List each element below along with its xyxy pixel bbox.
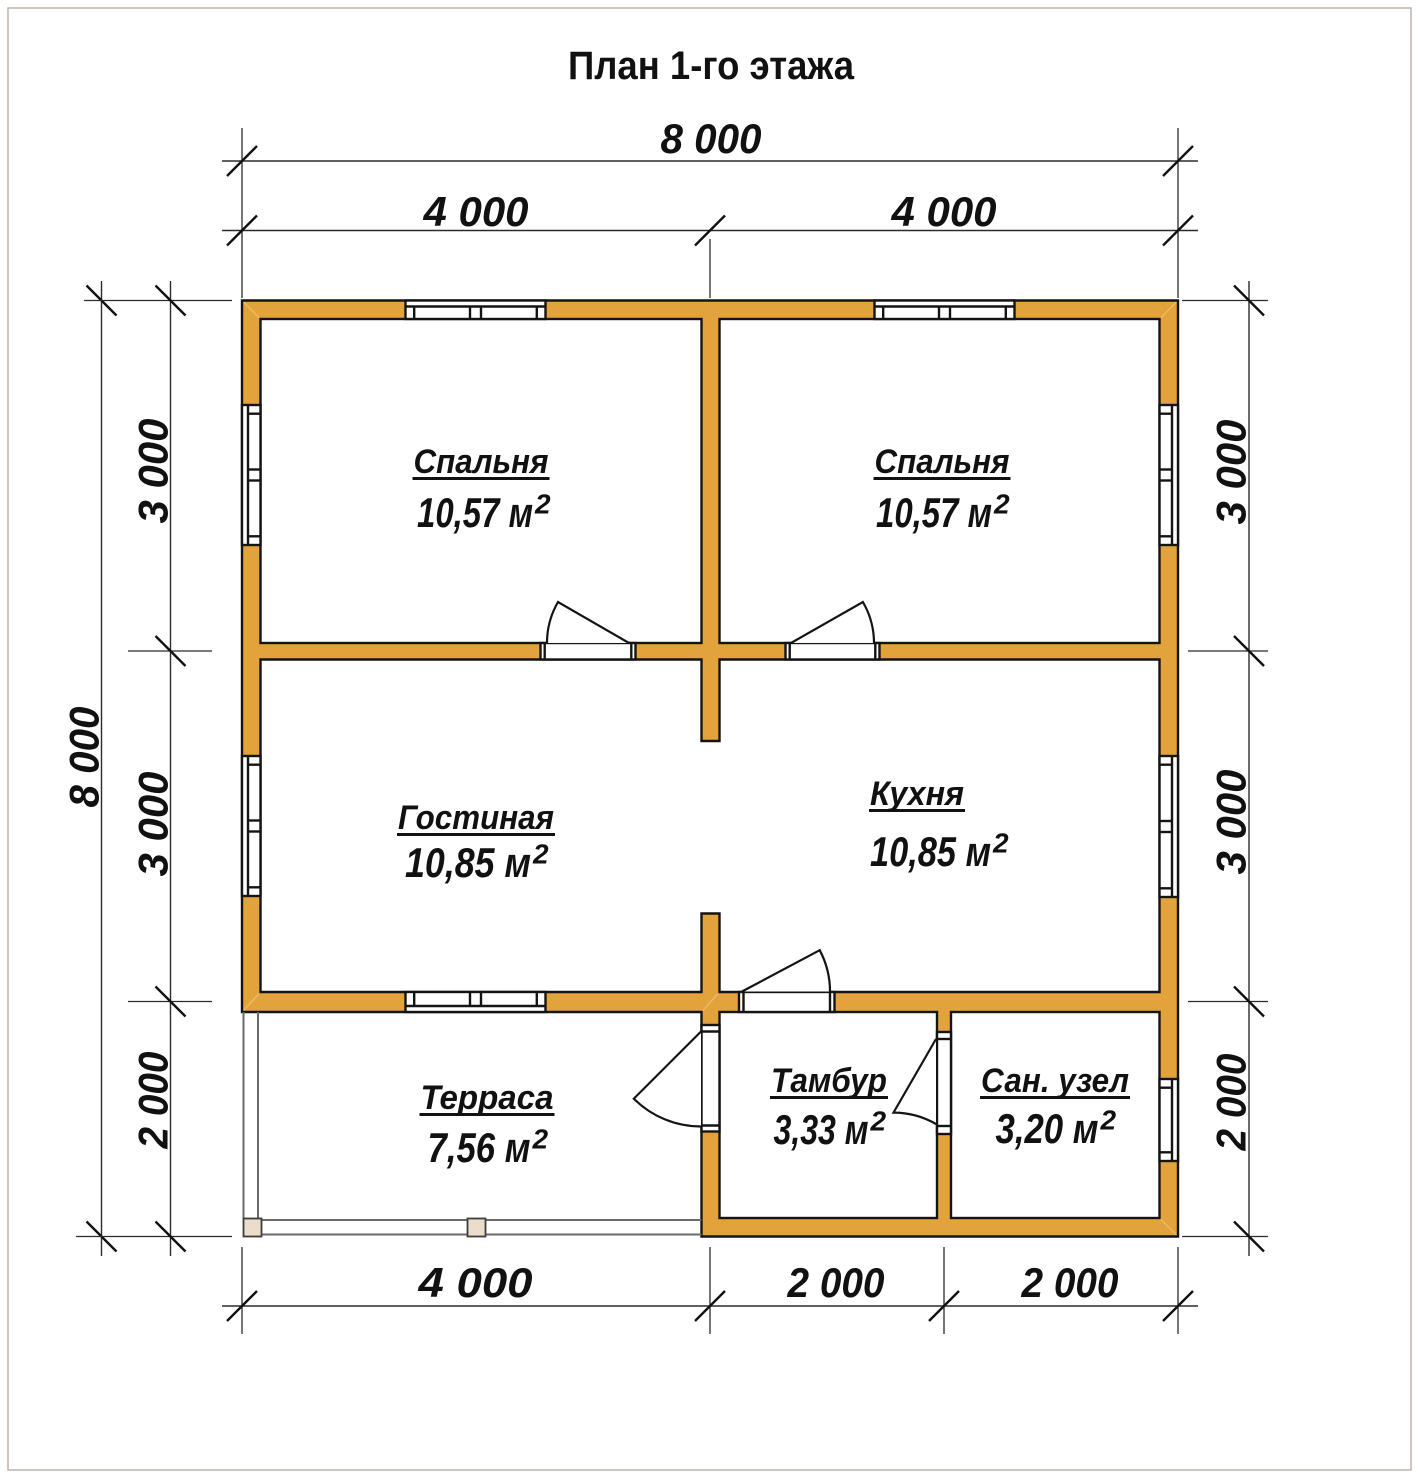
svg-text:4 000: 4 000 [891,188,997,235]
svg-text:4 000: 4 000 [423,188,529,235]
svg-text:10,85 м: 10,85 м [405,839,531,886]
svg-text:3 000: 3 000 [130,419,177,524]
svg-text:3,20 м: 3,20 м [996,1105,1099,1152]
svg-text:Спальня: Спальня [875,443,1010,481]
svg-text:Кухня: Кухня [870,775,964,813]
svg-text:8 000: 8 000 [661,115,762,162]
svg-text:2: 2 [532,839,549,870]
svg-text:7,56 м: 7,56 м [428,1124,531,1171]
svg-text:10,85 м: 10,85 м [870,828,991,875]
svg-text:Сан. узел: Сан. узел [981,1062,1129,1100]
svg-text:2 000: 2 000 [130,1052,177,1150]
svg-text:План 1-го этажа: План 1-го этажа [568,44,855,88]
svg-text:10,57 м: 10,57 м [876,489,992,536]
svg-text:2 000: 2 000 [787,1259,885,1306]
svg-text:3 000: 3 000 [130,772,177,877]
svg-text:8 000: 8 000 [61,707,108,808]
svg-text:4 000: 4 000 [417,1259,532,1306]
svg-text:3,33 м: 3,33 м [774,1106,869,1153]
svg-text:Гостиная: Гостиная [398,799,554,837]
svg-text:2: 2 [992,828,1009,859]
svg-text:3 000: 3 000 [1208,420,1255,525]
svg-text:10,57 м: 10,57 м [417,489,533,536]
svg-text:Спальня: Спальня [414,443,549,481]
svg-text:2: 2 [532,1124,549,1155]
svg-text:2 000: 2 000 [1208,1054,1255,1152]
svg-text:2 000: 2 000 [1021,1259,1119,1306]
svg-text:2: 2 [1100,1105,1117,1136]
svg-text:3 000: 3 000 [1208,770,1255,875]
svg-text:2: 2 [870,1106,887,1137]
svg-text:Терраса: Терраса [421,1079,554,1117]
svg-text:2: 2 [534,489,551,520]
svg-text:2: 2 [993,489,1010,520]
svg-text:Тамбур: Тамбур [771,1062,887,1100]
